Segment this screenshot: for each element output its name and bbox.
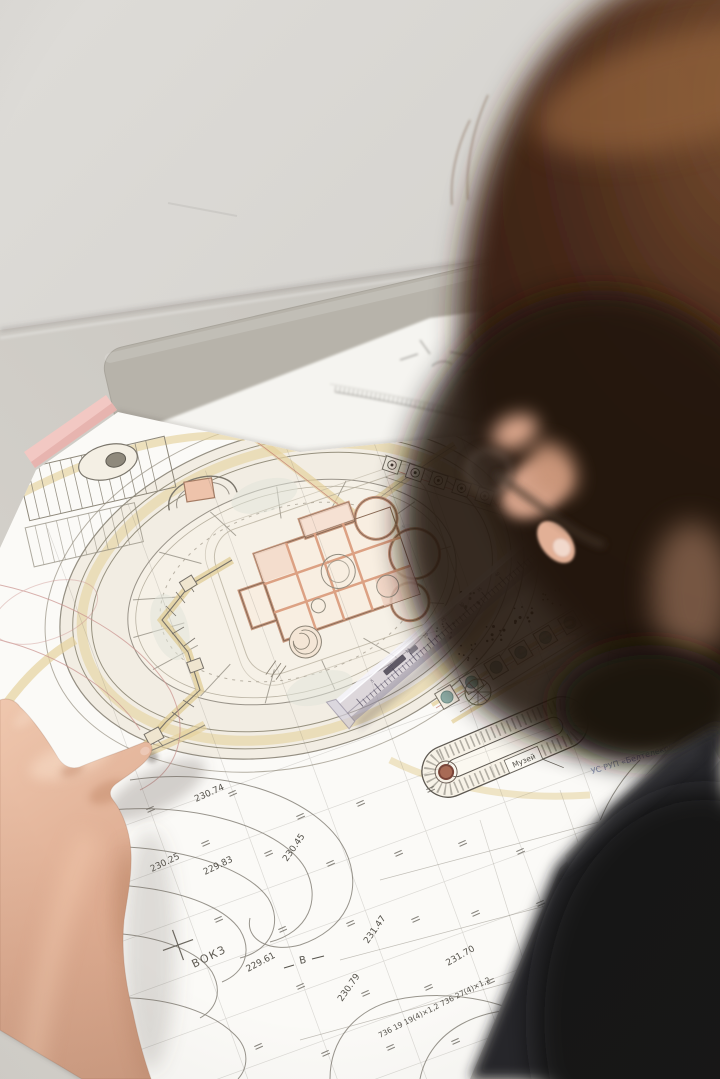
vignette xyxy=(0,0,720,1079)
photo-architect-reviewing-plans: Музей xyxy=(0,0,720,1079)
